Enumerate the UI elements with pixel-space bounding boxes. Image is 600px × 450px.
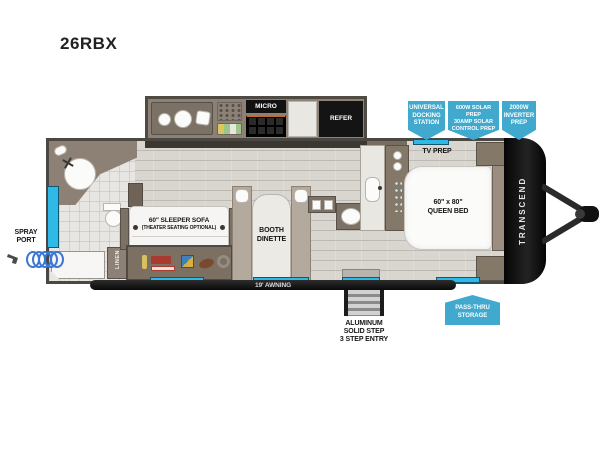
sofa-label-line2: (THEATER SEATING OPTIONAL) (130, 226, 228, 232)
spray-hose-coil-icon (26, 251, 64, 267)
steps-label-line1: ALUMINUM (316, 320, 412, 328)
spice-rack-icon (217, 102, 242, 121)
control-panel-icon (394, 180, 402, 212)
callout-inverter-prep: 2000W INVERTER PREP (502, 101, 536, 140)
trailer-body: LINEN 60" SLEEPER SOFA (THEATER SEATING … (46, 138, 512, 284)
cutting-board-icon (195, 110, 211, 126)
callout-solar-line3: CONTROL PREP (452, 126, 496, 133)
sofa-cupholder-left-icon (133, 225, 138, 230)
spray-port-line1: SPRAY (6, 229, 46, 237)
dinette-cushion-right (294, 189, 308, 203)
board-game-icon (181, 255, 194, 268)
callout-pass-thru-storage: PASS-THRU STORAGE (445, 295, 500, 325)
kitchen-peninsula (360, 145, 385, 231)
pet-dish (308, 196, 336, 213)
nightstand-bottom (476, 256, 506, 281)
nightstand-top (476, 142, 506, 166)
trash-bin-icon (341, 208, 361, 225)
callout-passthru-line2: STORAGE (458, 313, 488, 321)
storage-box-icon (151, 256, 171, 264)
bottle-icon (142, 255, 147, 269)
floorplan-canvas: 26RBX MICRO REFER LINEN (0, 0, 600, 450)
sleeper-sofa: 60" SLEEPER SOFA (THEATER SEATING OPTION… (129, 206, 229, 249)
callout-inverter-line3: PREP (511, 120, 527, 128)
refrigerator: REFER (319, 101, 363, 137)
football-icon (198, 257, 215, 270)
sofa-seat-line (132, 236, 228, 237)
kitchen-counter-edge (145, 141, 367, 148)
spray-port-line2: PORT (6, 237, 46, 245)
queen-bed: 60" x 80" QUEEN BED (404, 166, 492, 250)
dinette-cushion-left (235, 189, 249, 203)
steps-label-line2: SOLID STEP (316, 328, 412, 336)
dish-towels-icon (217, 123, 242, 135)
brand-logo: TRANSCEND (518, 156, 527, 266)
dinette-label-line2: DINETTE (253, 236, 290, 244)
pet-dish-bowl-right-icon (324, 200, 333, 210)
peninsula-faucet-icon (378, 186, 382, 190)
callout-solar-line2: 30AMP SOLAR (454, 119, 493, 126)
steps-label: ALUMINUM SOLID STEP 3 STEP ENTRY (316, 320, 412, 344)
callout-docking-line3: STATION (414, 120, 439, 128)
kitchen-slide: MICRO REFER (145, 96, 367, 141)
wardrobe-cabinet (128, 183, 143, 207)
callout-universal-docking: UNIVERSAL DOCKING STATION (408, 101, 445, 140)
sofa-end-table-left (120, 208, 129, 250)
callout-docking-line2: DOCKING (412, 113, 440, 121)
storage-bay (126, 245, 233, 281)
bed-label-line2: QUEEN BED (405, 208, 491, 216)
awning-label: 19' AWNING (90, 282, 456, 289)
callout-solar-line1: 600W SOLAR PREP (448, 105, 499, 119)
gear-icon (217, 255, 230, 268)
refrigerator-label: REFER (330, 115, 352, 122)
kitchen-sink-counter (151, 102, 213, 135)
steps-label-line3: 3 STEP ENTRY (316, 336, 412, 344)
callout-inverter-line1: 2000W (509, 105, 528, 113)
kitchen-counter (288, 101, 317, 137)
bathroom-window (47, 186, 59, 248)
callout-solar-prep: 600W SOLAR PREP 30AMP SOLAR CONTROL PREP (448, 101, 499, 140)
game-box-icon (151, 266, 175, 271)
hitch-icon (542, 172, 600, 256)
sink-bowl-large-icon (174, 110, 192, 128)
dinette-bench-left (232, 186, 252, 281)
callout-docking-line1: UNIVERSAL (409, 105, 444, 113)
awning-bar: 19' AWNING (90, 280, 456, 290)
microwave: MICRO (246, 100, 286, 113)
callout-inverter-line2: INVERTER (504, 113, 534, 121)
entry-steps (344, 290, 384, 316)
tv-prep-label: TV PREP (397, 148, 477, 156)
linen-label: LINEN (115, 250, 121, 269)
sofa-cupholder-right-icon (220, 225, 225, 230)
front-cap: TRANSCEND (504, 138, 546, 284)
sink-bowl-small-icon (158, 113, 171, 126)
stove-range-icon (246, 115, 286, 137)
cabinet-knob-bottom-icon (393, 162, 402, 171)
pet-dish-bowl-left-icon (312, 200, 321, 210)
callout-passthru-line1: PASS-THRU (455, 305, 490, 313)
spray-port-label: SPRAY PORT (6, 229, 46, 245)
sofa-label-line1: 60" SLEEPER SOFA (130, 217, 228, 224)
dinette-label-line1: BOOTH (253, 227, 290, 235)
bed-label-line1: 60" x 80" (405, 199, 491, 207)
microwave-label: MICRO (255, 103, 277, 110)
model-title: 26RBX (60, 34, 130, 54)
bedroom-top-window (413, 139, 449, 145)
dinette-table: BOOTH DINETTE (252, 194, 291, 281)
